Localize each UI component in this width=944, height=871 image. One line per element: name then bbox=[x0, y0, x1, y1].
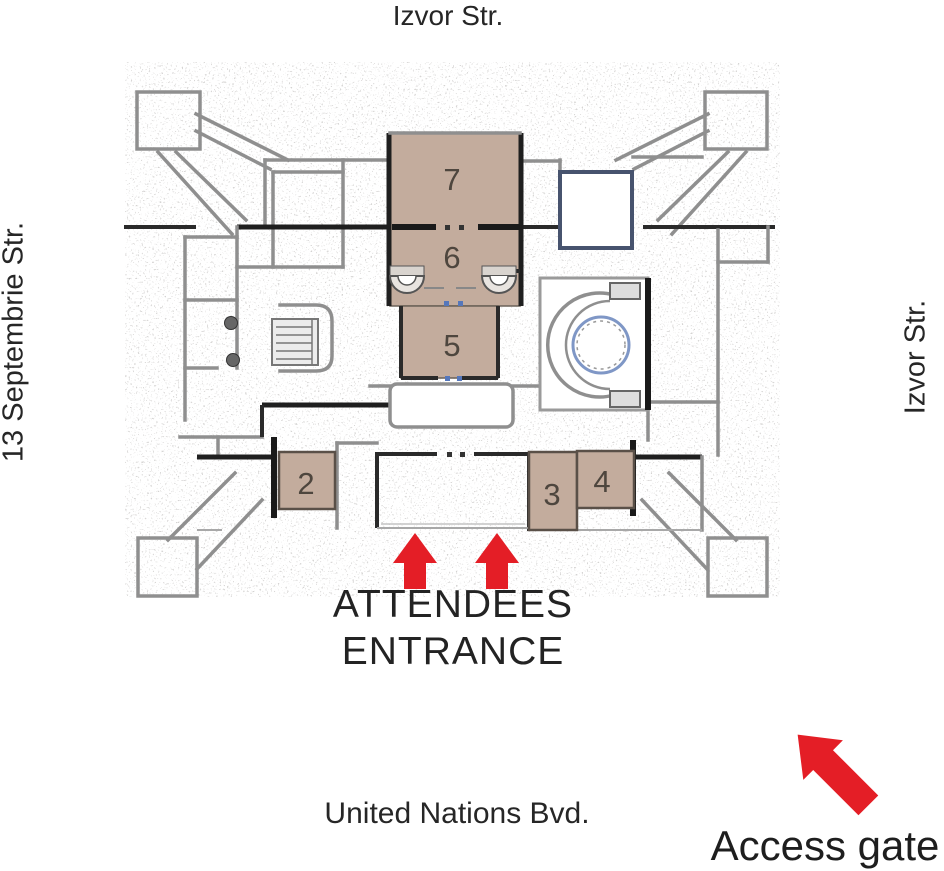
blue-room bbox=[560, 172, 632, 248]
floor-plan-canvas: 7 6 5 2 3 4 bbox=[0, 0, 944, 871]
room-3-label: 3 bbox=[543, 477, 560, 512]
attendees-entrance-label: ATTENDEES ENTRANCE bbox=[333, 581, 573, 675]
round-hall bbox=[540, 278, 648, 410]
vestibule bbox=[390, 384, 513, 427]
round-hall-ring bbox=[573, 317, 629, 373]
column-dot bbox=[225, 317, 238, 330]
room-2-label: 2 bbox=[297, 466, 314, 501]
street-label-13-septembrie: 13 Septembrie Str. bbox=[0, 222, 31, 462]
street-label-izvor-top: Izvor Str. bbox=[393, 0, 503, 32]
attendees-entrance-line1: ATTENDEES bbox=[333, 581, 573, 628]
attendees-entrance-line2: ENTRANCE bbox=[333, 628, 573, 675]
access-gate-label: Access gate bbox=[711, 822, 940, 870]
room-5-label: 5 bbox=[443, 328, 460, 363]
room-4-label: 4 bbox=[593, 464, 610, 499]
room-6-label: 6 bbox=[443, 240, 460, 275]
access-gate-arrow-icon bbox=[778, 715, 888, 825]
column-dot bbox=[227, 354, 240, 367]
street-label-united-nations: United Nations Bvd. bbox=[324, 797, 589, 831]
street-label-izvor-right: Izvor Str. bbox=[900, 300, 933, 414]
room-7-label: 7 bbox=[443, 162, 460, 197]
